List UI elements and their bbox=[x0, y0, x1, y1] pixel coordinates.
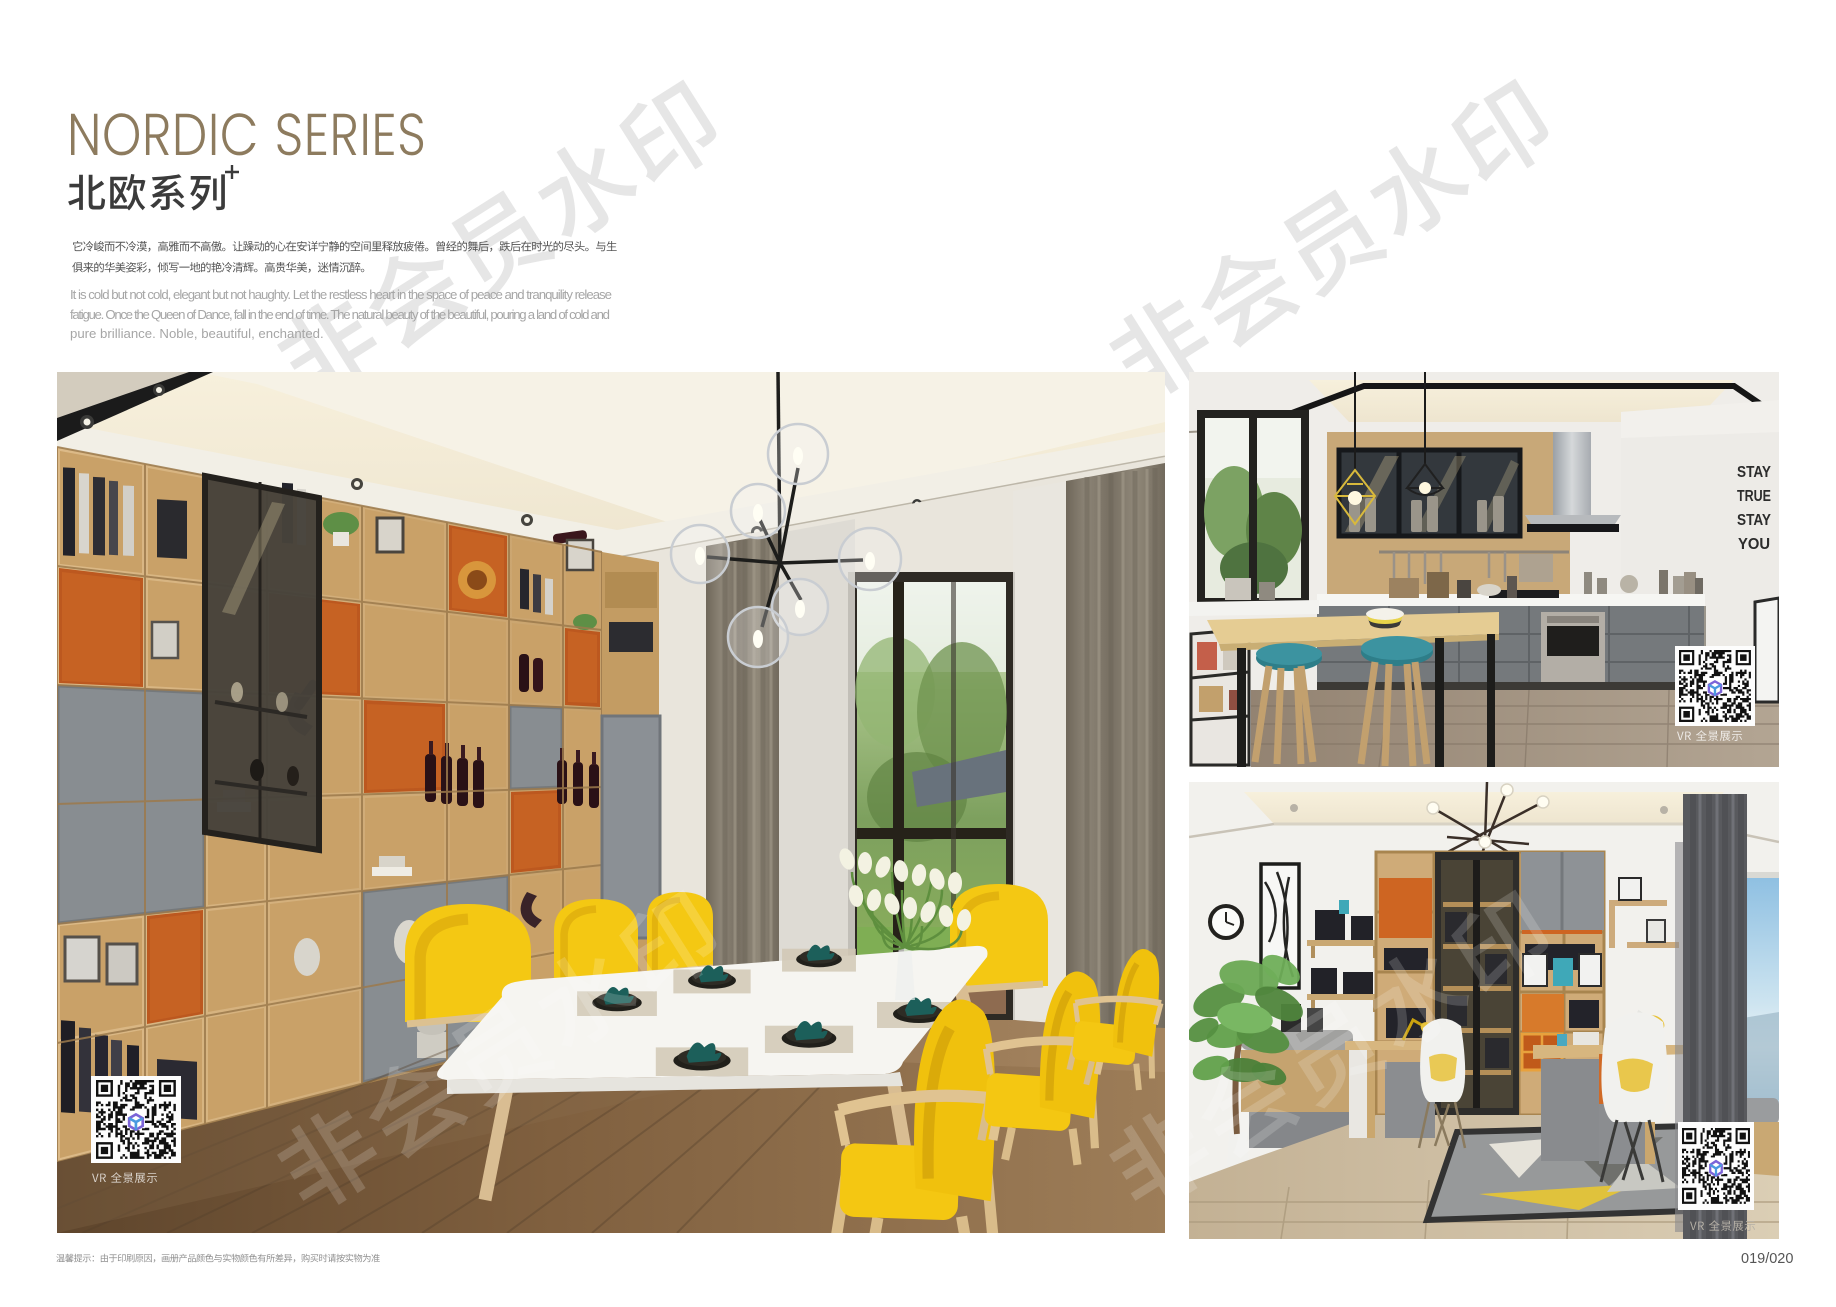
svg-text:STAY: STAY bbox=[1737, 512, 1771, 529]
svg-text:fatigue. Once the Queen of Dan: fatigue. Once the Queen of Dance, fall i… bbox=[70, 307, 610, 322]
svg-text:It is cold but not cold, elega: It is cold but not cold, elegant but not… bbox=[70, 287, 612, 302]
svg-text:019/020: 019/020 bbox=[1741, 1251, 1793, 1267]
svg-text:TRUE: TRUE bbox=[1737, 488, 1771, 505]
svg-text:STAY: STAY bbox=[1737, 464, 1771, 481]
svg-text:pure brilliance. Noble, beauti: pure brilliance. Noble, beautiful, encha… bbox=[70, 326, 324, 341]
svg-text:YOU: YOU bbox=[1738, 536, 1770, 553]
